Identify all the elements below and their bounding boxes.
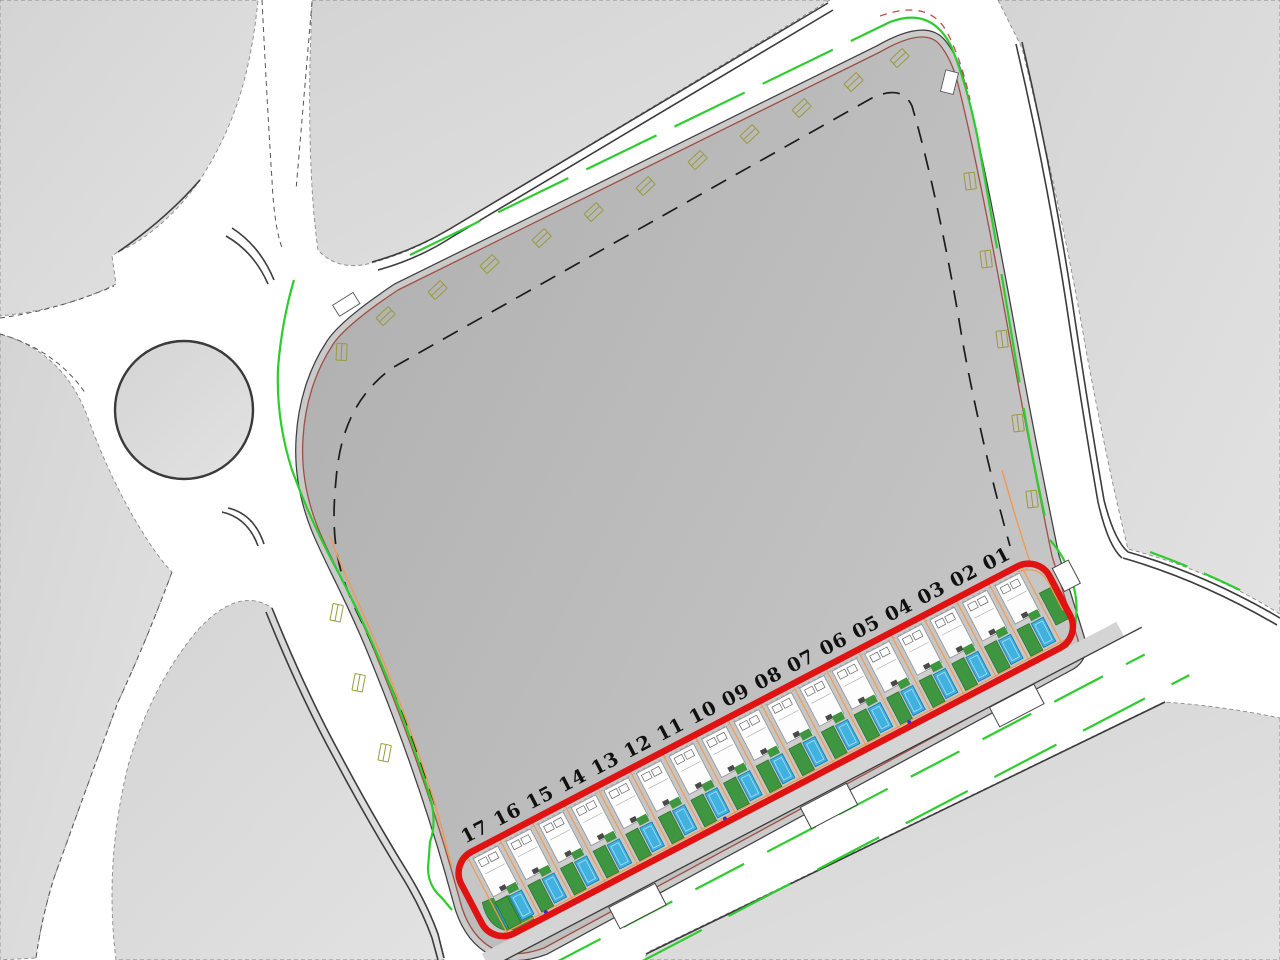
- roundabout: [115, 341, 253, 479]
- site-plan-drawing: 1716151413121110090807060504030201: [0, 0, 1280, 960]
- site-plan-page: 1716151413121110090807060504030201: [0, 0, 1280, 960]
